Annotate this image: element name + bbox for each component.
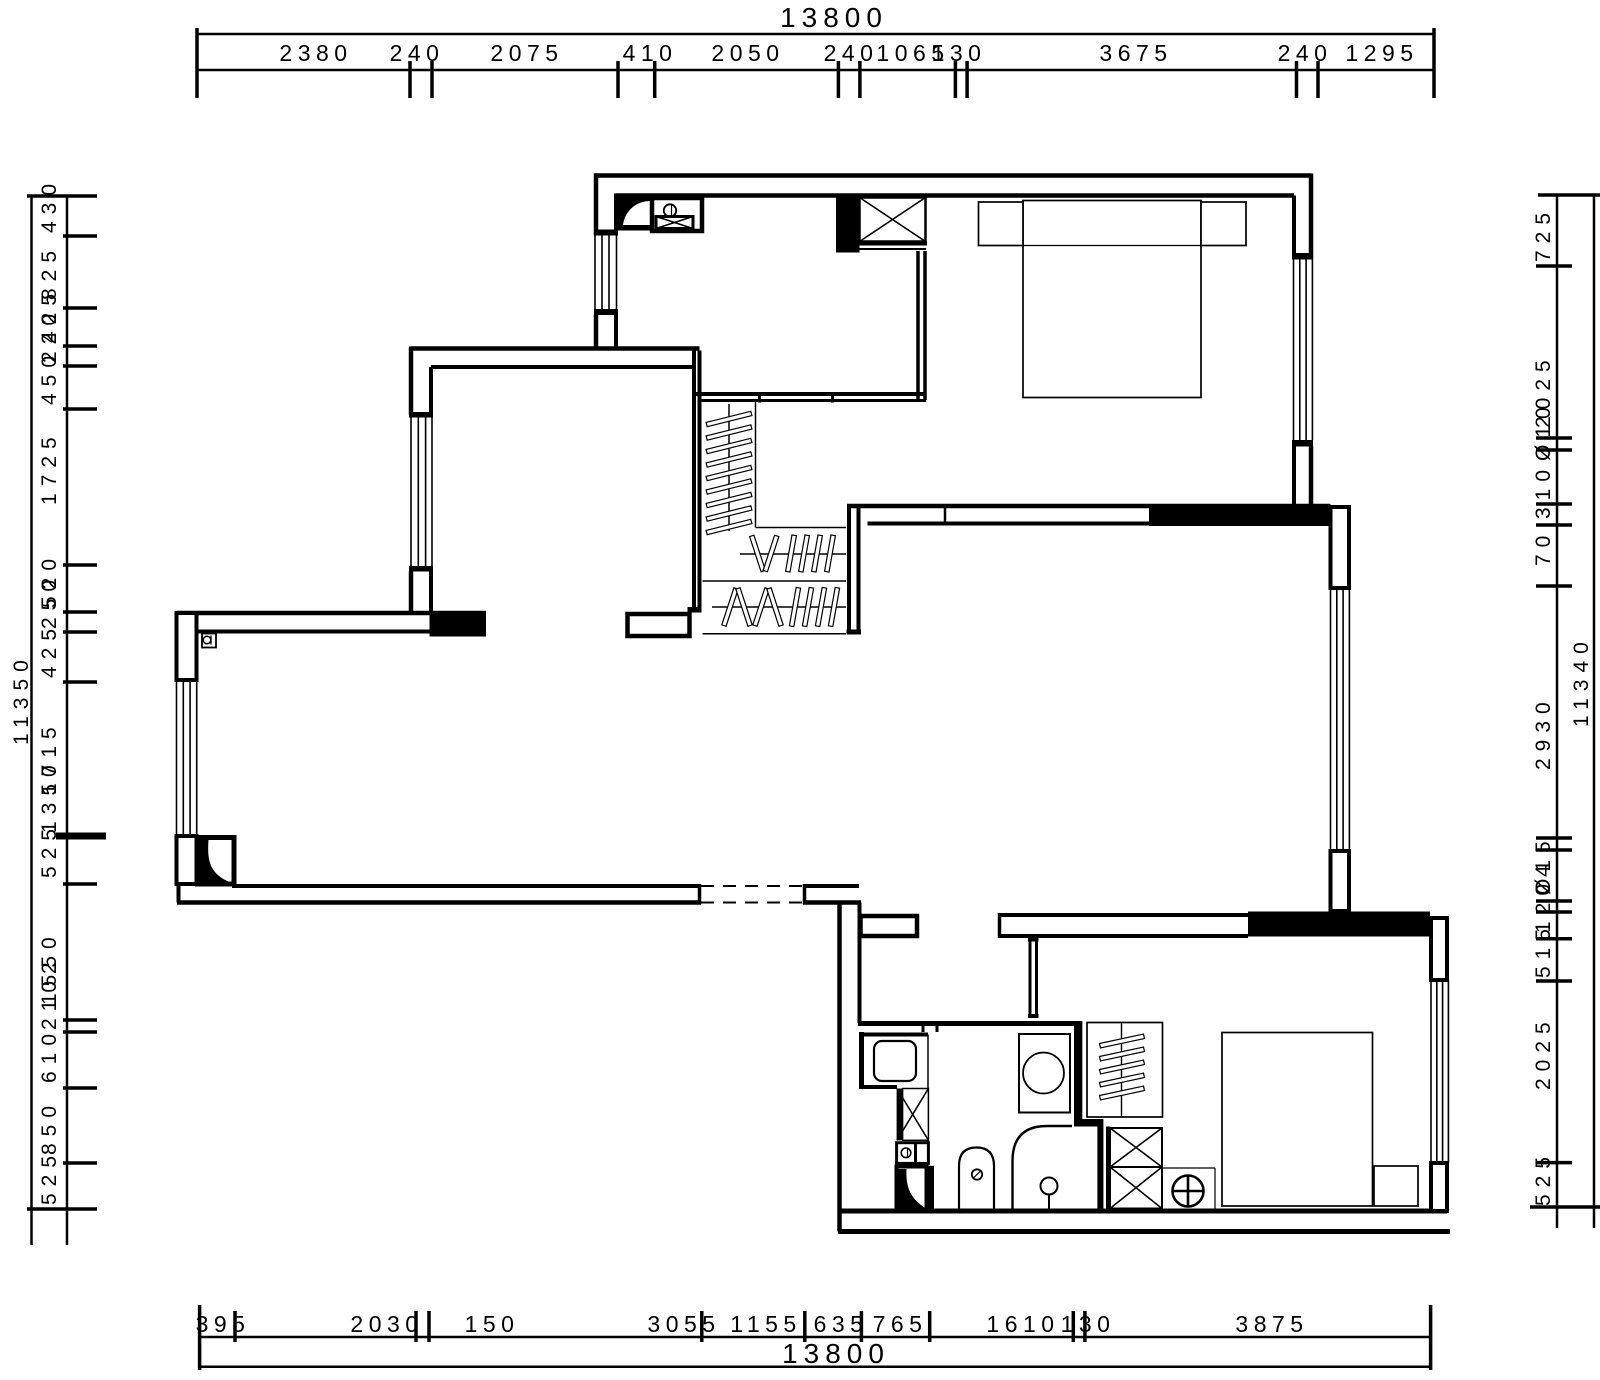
svg-text:450: 450 [38,349,61,405]
svg-text:1725: 1725 [38,430,61,505]
svg-text:3875: 3875 [1235,1311,1308,1337]
svg-text:525: 525 [1532,1150,1555,1206]
svg-text:3675: 3675 [1099,40,1172,66]
svg-text:2380: 2380 [279,40,352,66]
svg-text:130: 130 [932,40,987,66]
svg-text:1350: 1350 [38,758,61,833]
svg-text:635: 635 [814,1311,869,1337]
svg-text:2102: 2102 [38,955,61,1030]
svg-text:70: 70 [1532,529,1555,566]
svg-text:130: 130 [1061,1311,1116,1337]
svg-text:240: 240 [1278,40,1333,66]
svg-text:2075: 2075 [490,40,563,66]
svg-text:13800: 13800 [782,1338,890,1369]
svg-text:610: 610 [38,1027,61,1083]
svg-text:515: 515 [1532,922,1555,978]
svg-text:310: 310 [1532,463,1555,519]
svg-text:525: 525 [38,822,61,878]
svg-text:250: 250 [38,573,61,629]
svg-text:13800: 13800 [780,2,888,33]
svg-text:410: 410 [623,40,678,66]
svg-text:2050: 2050 [711,40,784,66]
svg-text:525: 525 [38,1149,61,1205]
svg-text:240: 240 [824,40,879,66]
svg-text:425: 425 [38,622,61,678]
svg-text:850: 850 [38,1099,61,1155]
svg-text:2930: 2930 [1532,695,1555,770]
svg-text:1295: 1295 [1345,40,1418,66]
svg-text:1610: 1610 [986,1311,1059,1337]
svg-text:1204: 1204 [1532,858,1555,933]
svg-text:395: 395 [196,1311,251,1337]
svg-text:3055: 3055 [647,1311,720,1337]
svg-text:11340: 11340 [1570,635,1593,727]
svg-text:240: 240 [390,40,445,66]
svg-text:725: 725 [1532,206,1555,262]
svg-text:Ø10: Ø10 [1532,400,1555,461]
svg-text:1155: 1155 [730,1311,801,1337]
svg-text:765: 765 [873,1311,928,1337]
svg-text:150: 150 [465,1311,520,1337]
svg-text:430: 430 [38,177,61,233]
svg-text:2025: 2025 [1532,1015,1555,1090]
svg-text:2030: 2030 [350,1311,423,1337]
svg-text:11350: 11350 [10,653,33,745]
